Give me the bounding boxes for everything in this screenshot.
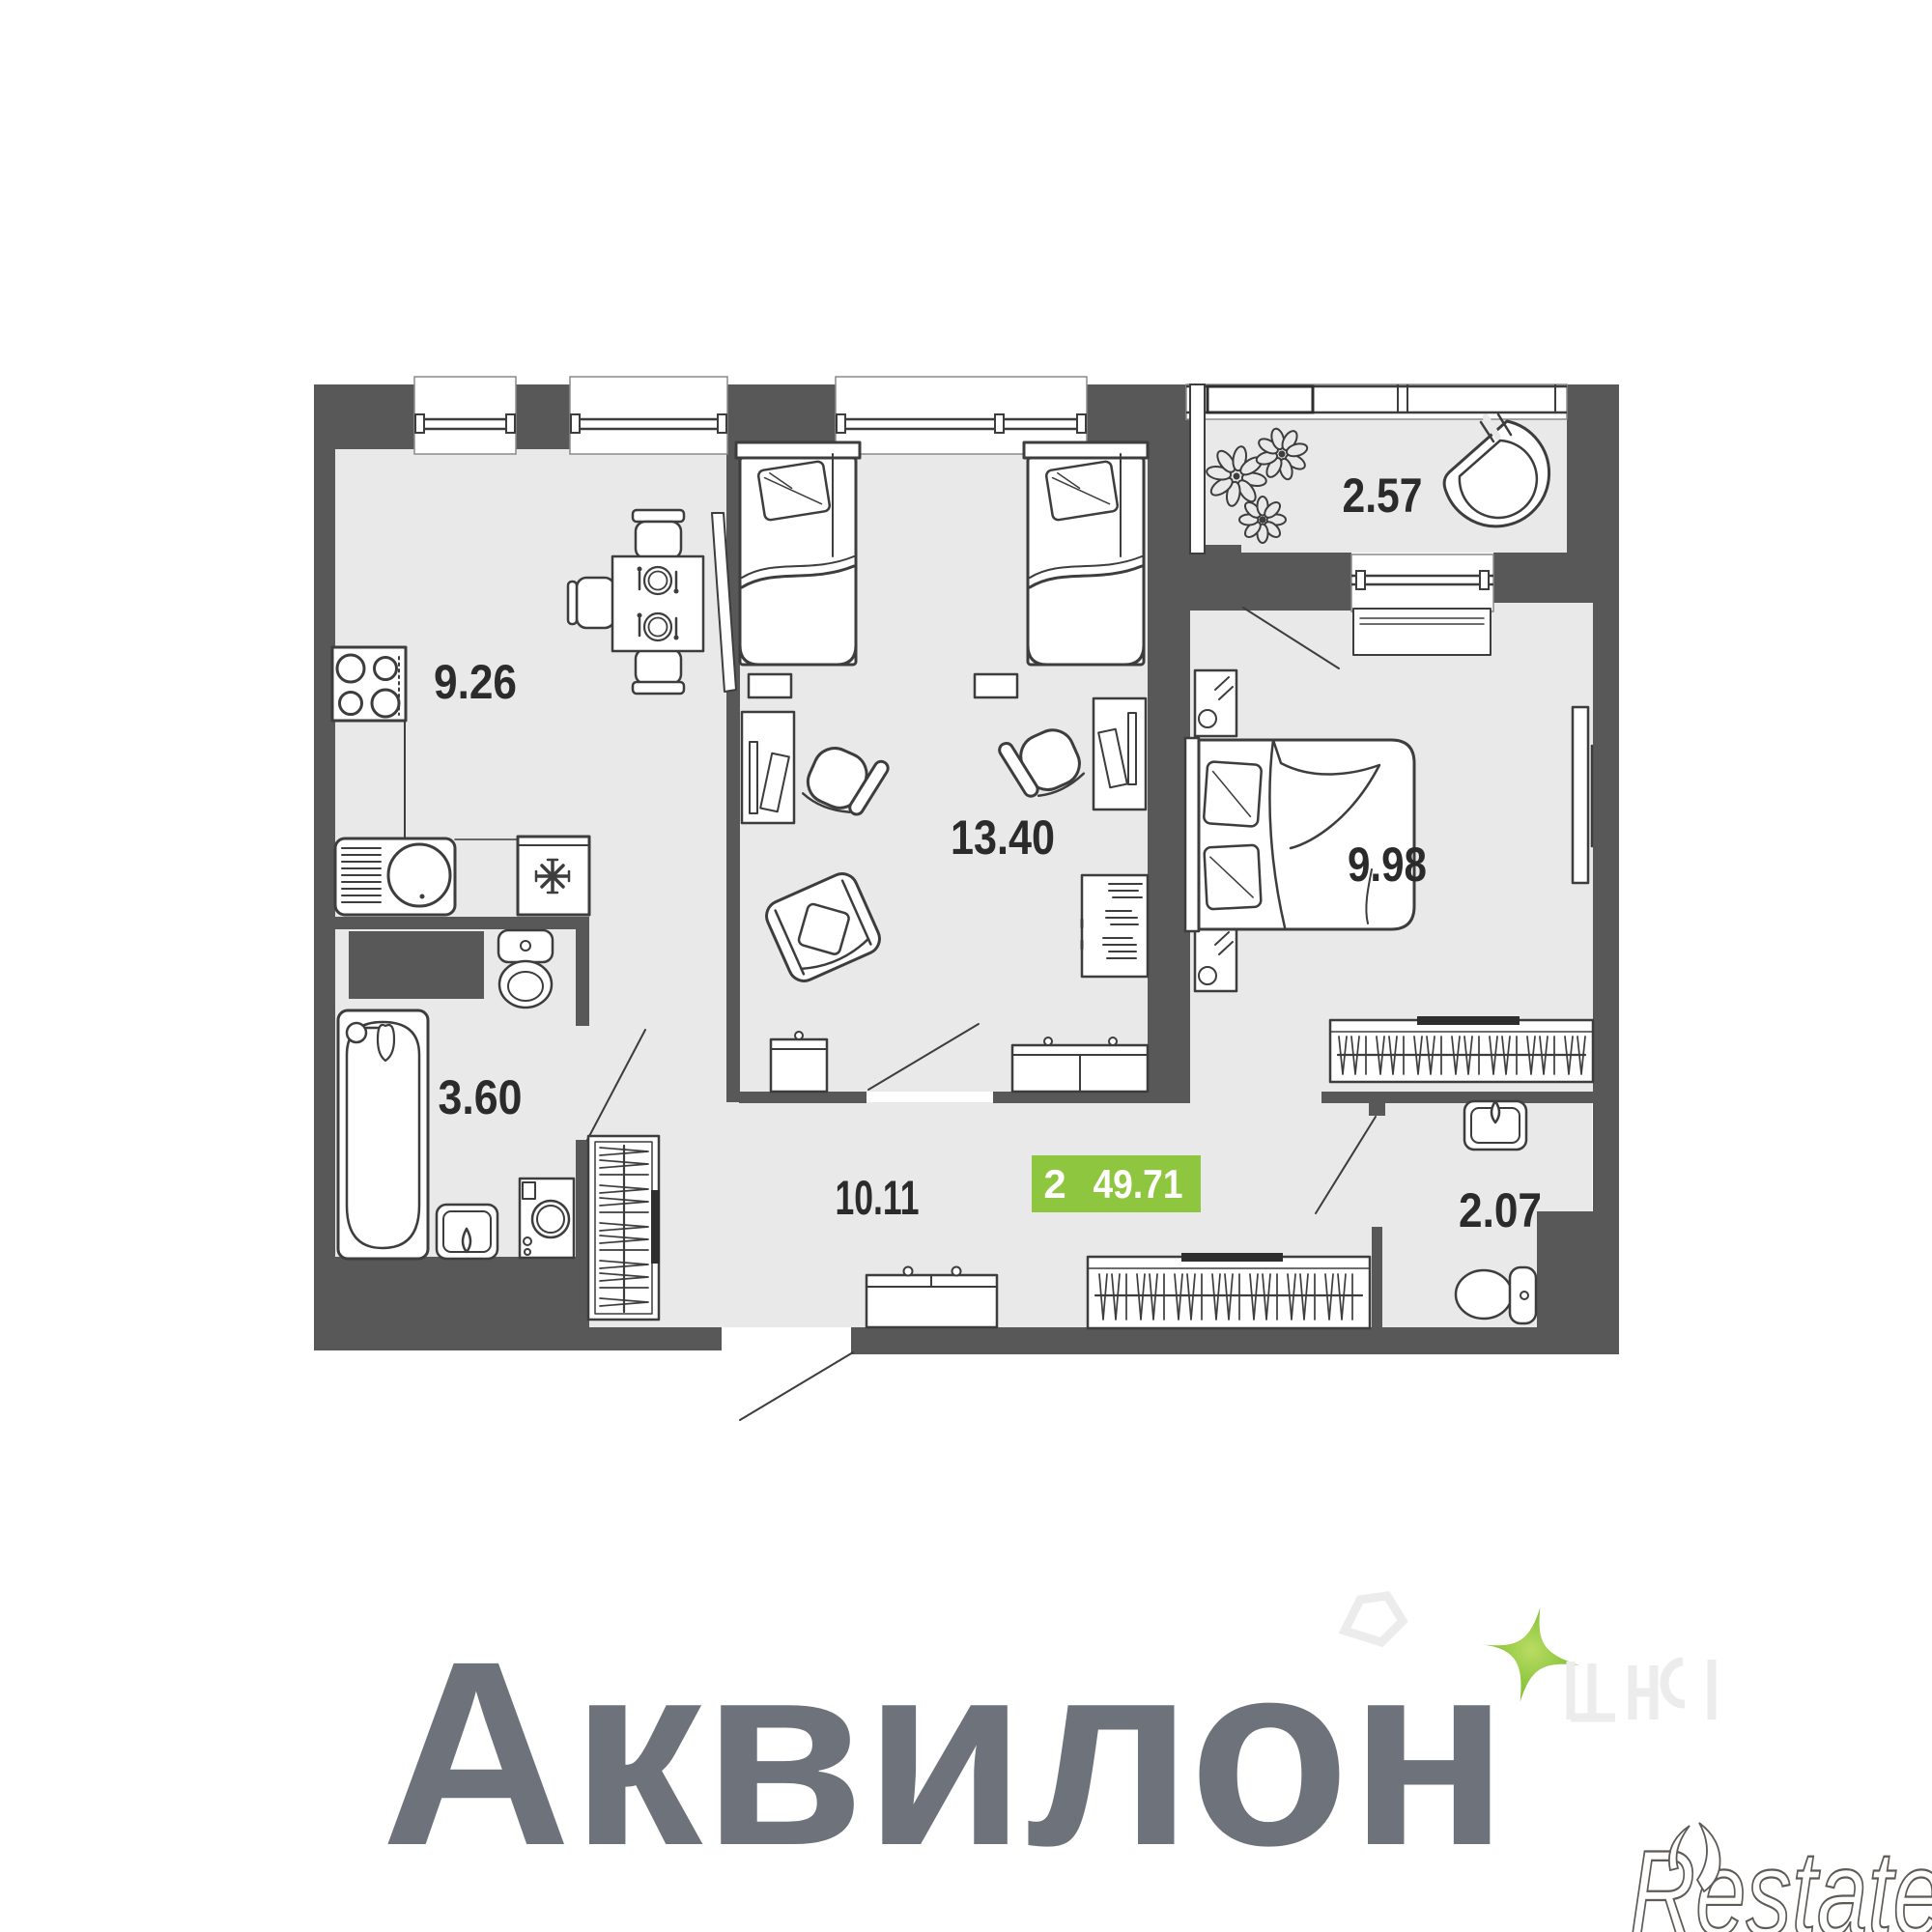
- svg-text:13.40: 13.40: [951, 810, 1055, 865]
- svg-text:2: 2: [1043, 1161, 1065, 1207]
- svg-text:Аквилон: Аквилон: [382, 1606, 1509, 1900]
- svg-text:2.57: 2.57: [1343, 469, 1423, 523]
- svg-text:49.71: 49.71: [1094, 1161, 1183, 1207]
- svg-text:9.26: 9.26: [434, 655, 517, 709]
- svg-text:9.98: 9.98: [1348, 838, 1427, 892]
- svg-text:3.60: 3.60: [439, 1070, 523, 1124]
- svg-text:10.11: 10.11: [836, 1171, 920, 1225]
- svg-text:2.07: 2.07: [1459, 1183, 1542, 1237]
